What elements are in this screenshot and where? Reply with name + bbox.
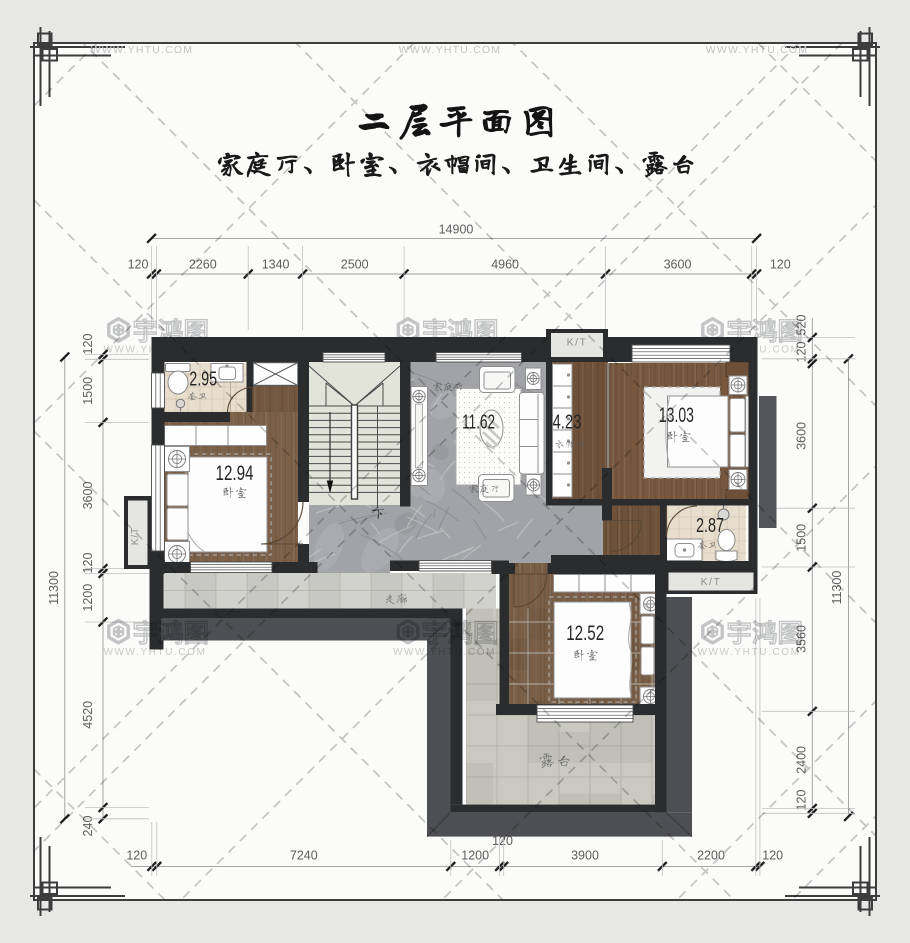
svg-text:WWW.YHTU.COM: WWW.YHTU.COM [103, 647, 206, 658]
svg-text:K/T: K/T [701, 576, 722, 588]
svg-text:1500: 1500 [795, 524, 809, 552]
svg-text:120: 120 [795, 342, 809, 363]
svg-text:WWW.YHTU.COM: WWW.YHTU.COM [91, 44, 193, 56]
svg-text:2500: 2500 [341, 258, 369, 272]
svg-text:1200: 1200 [461, 849, 489, 863]
svg-text:1340: 1340 [262, 258, 290, 272]
svg-text:1200: 1200 [81, 584, 95, 612]
svg-text:11300: 11300 [830, 571, 844, 605]
svg-text:120: 120 [795, 790, 809, 811]
svg-text:K/T: K/T [567, 337, 588, 349]
svg-text:3600: 3600 [664, 258, 692, 272]
svg-text:12.52: 12.52 [566, 622, 604, 645]
svg-text:2260: 2260 [189, 258, 217, 272]
svg-text:120: 120 [81, 334, 95, 355]
svg-text:14900: 14900 [439, 223, 474, 237]
svg-text:520: 520 [795, 315, 809, 336]
svg-text:WWW.YHTU.COM: WWW.YHTU.COM [706, 44, 808, 56]
svg-text:12.94: 12.94 [216, 462, 254, 485]
svg-text:4520: 4520 [81, 701, 95, 729]
svg-text:120: 120 [81, 553, 95, 574]
svg-text:11.62: 11.62 [462, 412, 495, 434]
svg-text:2.87: 2.87 [696, 515, 724, 537]
svg-text:13.03: 13.03 [659, 404, 694, 427]
svg-text:11300: 11300 [47, 571, 61, 605]
svg-text:WWW.YHTU.COM: WWW.YHTU.COM [393, 647, 496, 658]
svg-text:4960: 4960 [491, 258, 519, 272]
svg-text:2.95: 2.95 [189, 369, 217, 391]
svg-text:120: 120 [770, 258, 791, 272]
svg-text:WWW.YHTU.COM: WWW.YHTU.COM [697, 647, 800, 658]
svg-text:3900: 3900 [571, 849, 599, 863]
svg-text:2200: 2200 [697, 849, 725, 863]
svg-text:3600: 3600 [81, 482, 95, 510]
svg-text:120: 120 [762, 849, 783, 863]
svg-text:1500: 1500 [81, 377, 95, 405]
svg-text:3600: 3600 [795, 422, 809, 450]
svg-text:7240: 7240 [290, 849, 318, 863]
svg-text:4.23: 4.23 [553, 412, 582, 434]
svg-text:120: 120 [126, 849, 147, 863]
svg-text:120: 120 [128, 258, 149, 272]
svg-text:WWW.YHTU.COM: WWW.YHTU.COM [399, 44, 501, 56]
